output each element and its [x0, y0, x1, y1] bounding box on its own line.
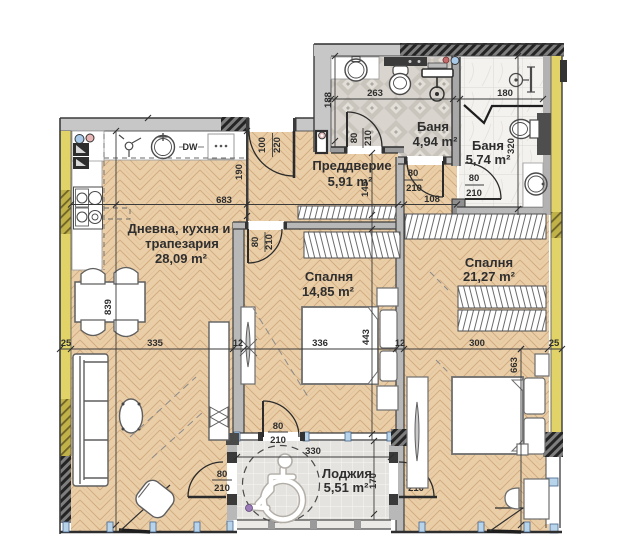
svg-text:14,85 m²: 14,85 m²: [302, 284, 355, 299]
svg-text:80: 80: [349, 133, 360, 144]
svg-text:683: 683: [216, 195, 232, 206]
svg-text:210: 210: [214, 483, 230, 494]
svg-text:Спалня: Спалня: [305, 269, 353, 284]
svg-text:12: 12: [233, 338, 243, 348]
svg-text:4,94 m²: 4,94 m²: [413, 134, 458, 149]
svg-text:210: 210: [363, 130, 374, 146]
svg-text:210: 210: [270, 435, 286, 446]
svg-text:188: 188: [323, 92, 334, 108]
svg-text:190: 190: [234, 164, 245, 180]
svg-text:80: 80: [250, 237, 261, 248]
svg-text:Дневна, кухня и: Дневна, кухня и: [128, 221, 231, 236]
svg-text:Баня: Баня: [472, 138, 504, 153]
svg-text:210: 210: [466, 188, 482, 199]
svg-text:5,51 m²: 5,51 m²: [324, 480, 369, 495]
svg-text:трапезария: трапезария: [145, 236, 219, 251]
svg-text:Лоджия: Лоджия: [322, 466, 372, 481]
svg-text:DW: DW: [183, 142, 198, 152]
svg-text:330: 330: [305, 446, 321, 457]
svg-text:25: 25: [61, 338, 72, 349]
svg-text:12: 12: [395, 338, 405, 348]
svg-text:220: 220: [272, 137, 283, 153]
svg-text:100: 100: [257, 137, 268, 153]
svg-text:210: 210: [406, 183, 422, 194]
svg-text:80: 80: [469, 173, 480, 184]
svg-text:5,74 m²: 5,74 m²: [466, 152, 511, 167]
svg-text:21,27 m²: 21,27 m²: [463, 269, 516, 284]
svg-text:Баня: Баня: [417, 119, 449, 134]
svg-text:180: 180: [497, 88, 513, 99]
svg-text:263: 263: [367, 88, 383, 99]
svg-text:Спалня: Спалня: [465, 255, 513, 270]
svg-text:80: 80: [217, 469, 228, 480]
svg-text:210: 210: [264, 234, 275, 250]
svg-text:5,91 m²: 5,91 m²: [328, 174, 373, 189]
svg-text:335: 335: [147, 338, 164, 349]
svg-text:Преддверие: Преддверие: [312, 158, 391, 173]
svg-text:28,09 m²: 28,09 m²: [155, 251, 208, 266]
svg-text:300: 300: [469, 338, 485, 349]
svg-text:80: 80: [273, 421, 284, 432]
svg-text:663: 663: [509, 357, 520, 373]
svg-text:839: 839: [103, 299, 114, 315]
svg-text:80: 80: [408, 168, 419, 179]
svg-text:25: 25: [549, 338, 560, 349]
svg-text:108: 108: [424, 194, 440, 205]
svg-text:336: 336: [312, 338, 328, 349]
svg-text:443: 443: [361, 329, 372, 345]
